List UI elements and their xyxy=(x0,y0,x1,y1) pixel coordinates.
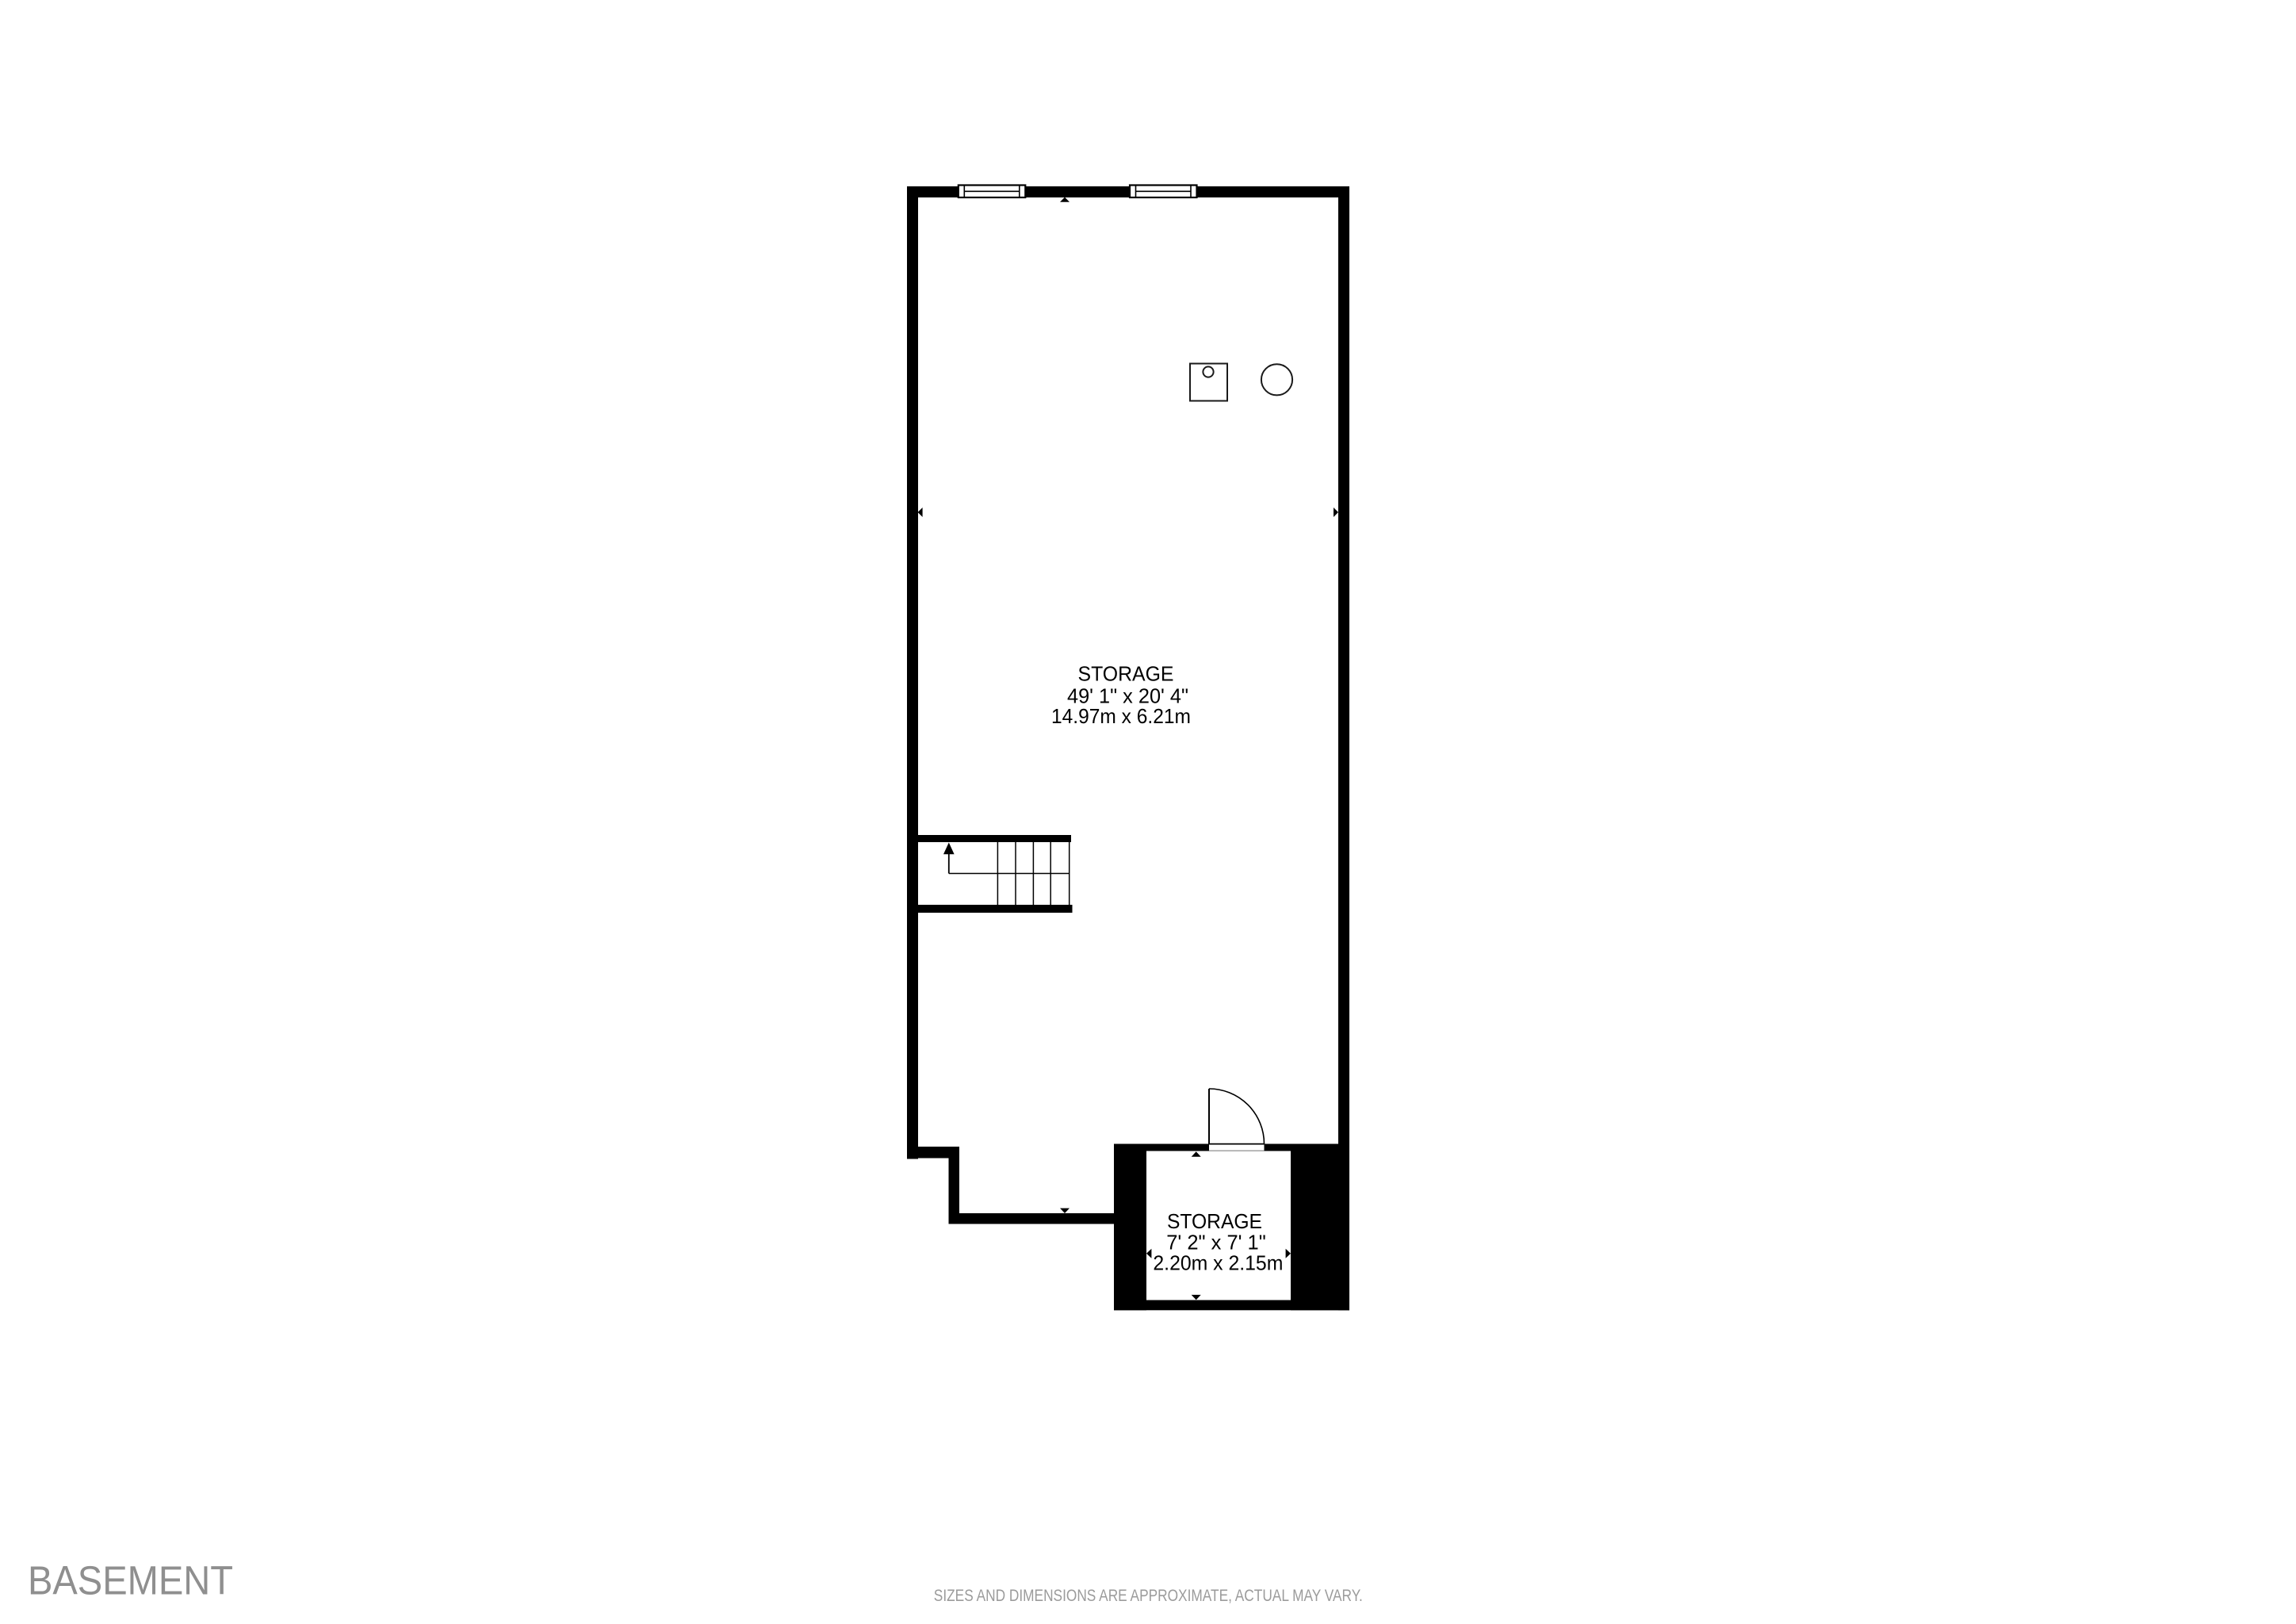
svg-text:SIZES AND DIMENSIONS ARE APPRO: SIZES AND DIMENSIONS ARE APPROXIMATE, AC… xyxy=(934,1586,1363,1605)
svg-text:STORAGE: STORAGE xyxy=(1167,1209,1262,1233)
svg-text:STORAGE: STORAGE xyxy=(1078,662,1174,686)
svg-text:14.97m x 6.21m: 14.97m x 6.21m xyxy=(1051,704,1191,728)
svg-text:2.20m x 2.15m: 2.20m x 2.15m xyxy=(1153,1251,1283,1275)
svg-text:BASEMENT: BASEMENT xyxy=(28,1557,233,1603)
